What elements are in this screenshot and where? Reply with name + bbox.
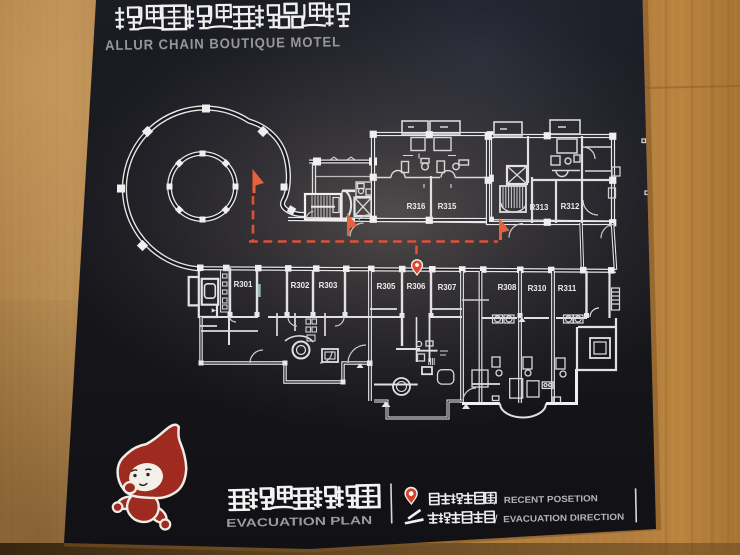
svg-text:R315: R315 [438, 202, 457, 211]
svg-text:R306: R306 [407, 282, 426, 291]
svg-text:R310: R310 [528, 284, 547, 293]
svg-text:R316: R316 [407, 202, 426, 211]
svg-text:R303: R303 [319, 281, 338, 290]
svg-text:R311: R311 [558, 284, 577, 293]
svg-text:R305: R305 [377, 282, 396, 291]
svg-text:R308: R308 [498, 283, 517, 292]
svg-text:R312: R312 [561, 202, 580, 211]
svg-text:R301: R301 [234, 280, 253, 289]
svg-text:R313: R313 [530, 203, 549, 212]
svg-text:R302: R302 [291, 281, 310, 290]
svg-text:R307: R307 [438, 283, 457, 292]
svg-text:RECENT POSETION: RECENT POSETION [504, 493, 598, 505]
